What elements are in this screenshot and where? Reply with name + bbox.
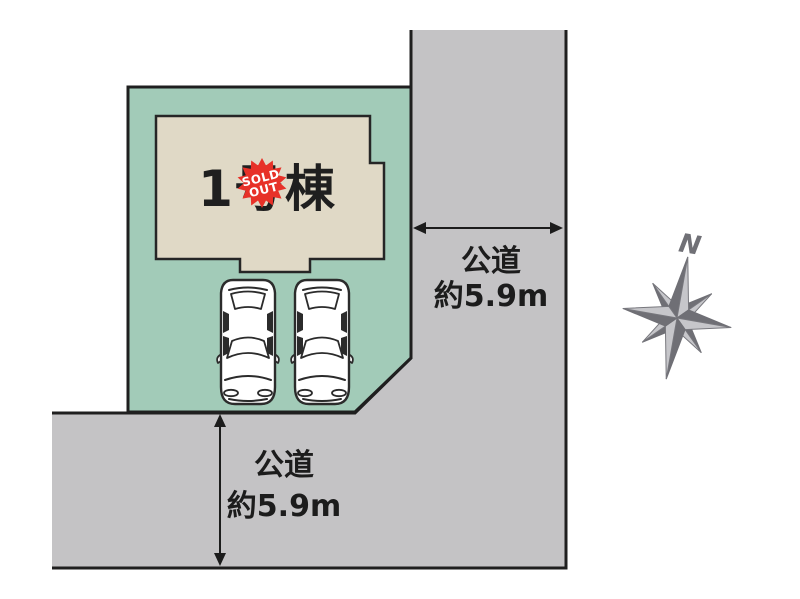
site-plan-drawing: 1号棟 SOLD OUT	[0, 0, 800, 599]
car-top-view-icon	[291, 280, 353, 404]
east-road-name: 公道	[461, 244, 521, 279]
compass-north-label: N	[677, 228, 704, 261]
car-top-view-icon	[217, 280, 279, 404]
compass-rose-icon: N	[612, 221, 747, 389]
east-road-width: 約5.9m	[434, 279, 548, 314]
site-plan-canvas: 1号棟 SOLD OUT	[0, 0, 800, 599]
south-road-name: 公道	[254, 448, 314, 483]
south-road-width: 約5.9m	[227, 489, 341, 524]
